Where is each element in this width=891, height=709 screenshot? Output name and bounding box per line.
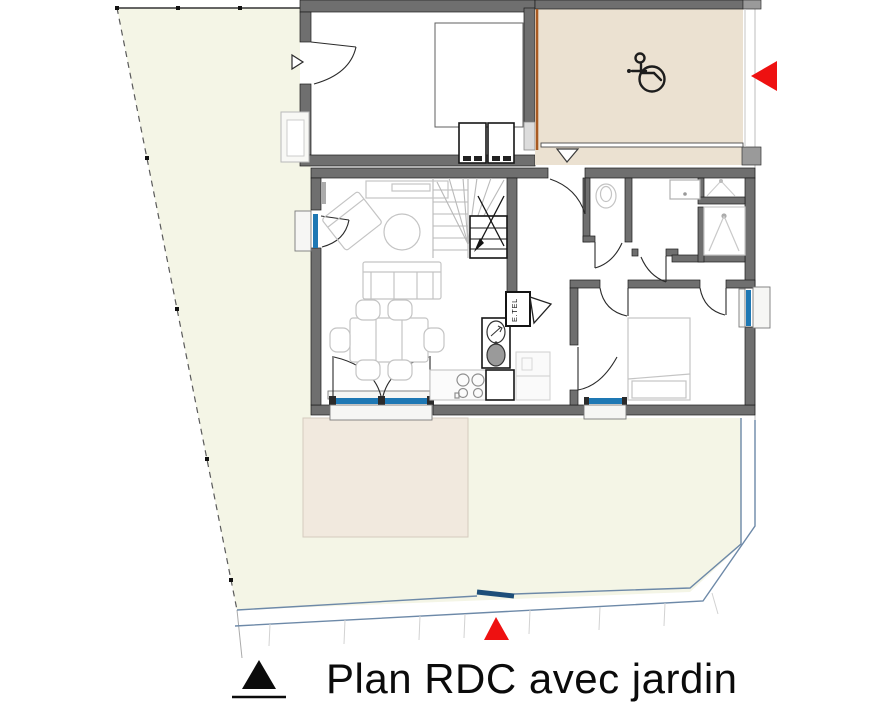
wall-top-right (585, 168, 755, 178)
dishwasher (486, 370, 514, 400)
stair-hall-wall (507, 178, 517, 295)
chair (330, 328, 350, 352)
wall-bottom-1 (311, 405, 330, 415)
bedroom-window-sill (584, 405, 626, 419)
washer-foot (463, 156, 471, 161)
black-triangle-icon (228, 652, 290, 700)
shower-wall-left (698, 207, 704, 262)
closet-wall-bottom (698, 197, 745, 204)
dryer-foot-2 (503, 156, 511, 161)
sink-tap (683, 192, 687, 196)
left-boundary-tail (237, 610, 242, 658)
bedroom-window-frame-r (622, 397, 627, 405)
garage-wall-top (300, 0, 535, 12)
radiator (321, 182, 326, 204)
bedroom-wall-left-2 (570, 390, 578, 405)
wall-right-upper (745, 178, 755, 288)
washer-foot-2 (474, 156, 482, 161)
garage-room (281, 0, 535, 166)
chair (356, 300, 380, 320)
dryer-foot (492, 156, 500, 161)
title-block: Plan RDC avec jardin (228, 652, 738, 700)
garage-carport-threshold (524, 122, 535, 150)
etel-label: E.TEL (510, 298, 519, 322)
carport (535, 0, 777, 165)
shower (704, 207, 745, 255)
french-door-frame-mid (378, 396, 385, 405)
wall-bottom-3 (625, 405, 755, 415)
chair (424, 328, 444, 352)
garage-carport-wall (524, 8, 535, 122)
french-door-threshold (330, 405, 432, 420)
meter-box-inner (287, 120, 304, 156)
carport-surface (535, 8, 743, 165)
left-window-outer-sill (295, 211, 311, 251)
left-window-glazing (313, 214, 318, 248)
bedroom-wall-left-1 (570, 288, 578, 345)
red-triangle-up-icon (484, 617, 509, 640)
bedroom-window-glazing (588, 398, 623, 404)
carport-post-top-right (743, 0, 761, 9)
dining-table (350, 318, 428, 362)
bathroom-sink (670, 180, 700, 199)
french-door-frame-left (329, 396, 336, 405)
wall-right-lower (745, 327, 755, 405)
terrace-surface (303, 418, 468, 537)
wall-bottom-2 (433, 405, 584, 415)
garage-storage-outline (435, 23, 523, 127)
bath-wall-bottom-1 (632, 249, 638, 256)
chair (388, 300, 412, 320)
carport-post-bottom-right (742, 147, 761, 165)
chair (388, 360, 412, 380)
wc-wall-stub (583, 236, 595, 242)
wc-bath-divider (625, 178, 632, 242)
carport-wall-top (535, 0, 743, 9)
right-window-outer-sill (753, 287, 770, 328)
wall-top-left (311, 168, 548, 178)
right-window-glazing (746, 290, 751, 326)
bedroom-window-frame-l (584, 397, 589, 405)
bedroom-wall-top-3 (726, 280, 755, 288)
shower-wall-bottom (672, 255, 745, 262)
carport-fascia-bar (541, 143, 743, 147)
stair-lower-flight (470, 216, 507, 258)
kitchen-cabinet (516, 352, 550, 400)
right-window-inner-sill (739, 289, 745, 327)
wall-left-upper (311, 178, 321, 210)
bedroom-wall-top-1 (570, 280, 600, 288)
garage-wall-left-upper (300, 12, 311, 42)
wall-left-lower (311, 248, 321, 405)
page-title: Plan RDC avec jardin (326, 658, 738, 700)
floor-plan-drawing: E.TEL (0, 0, 891, 709)
chair (356, 360, 380, 380)
